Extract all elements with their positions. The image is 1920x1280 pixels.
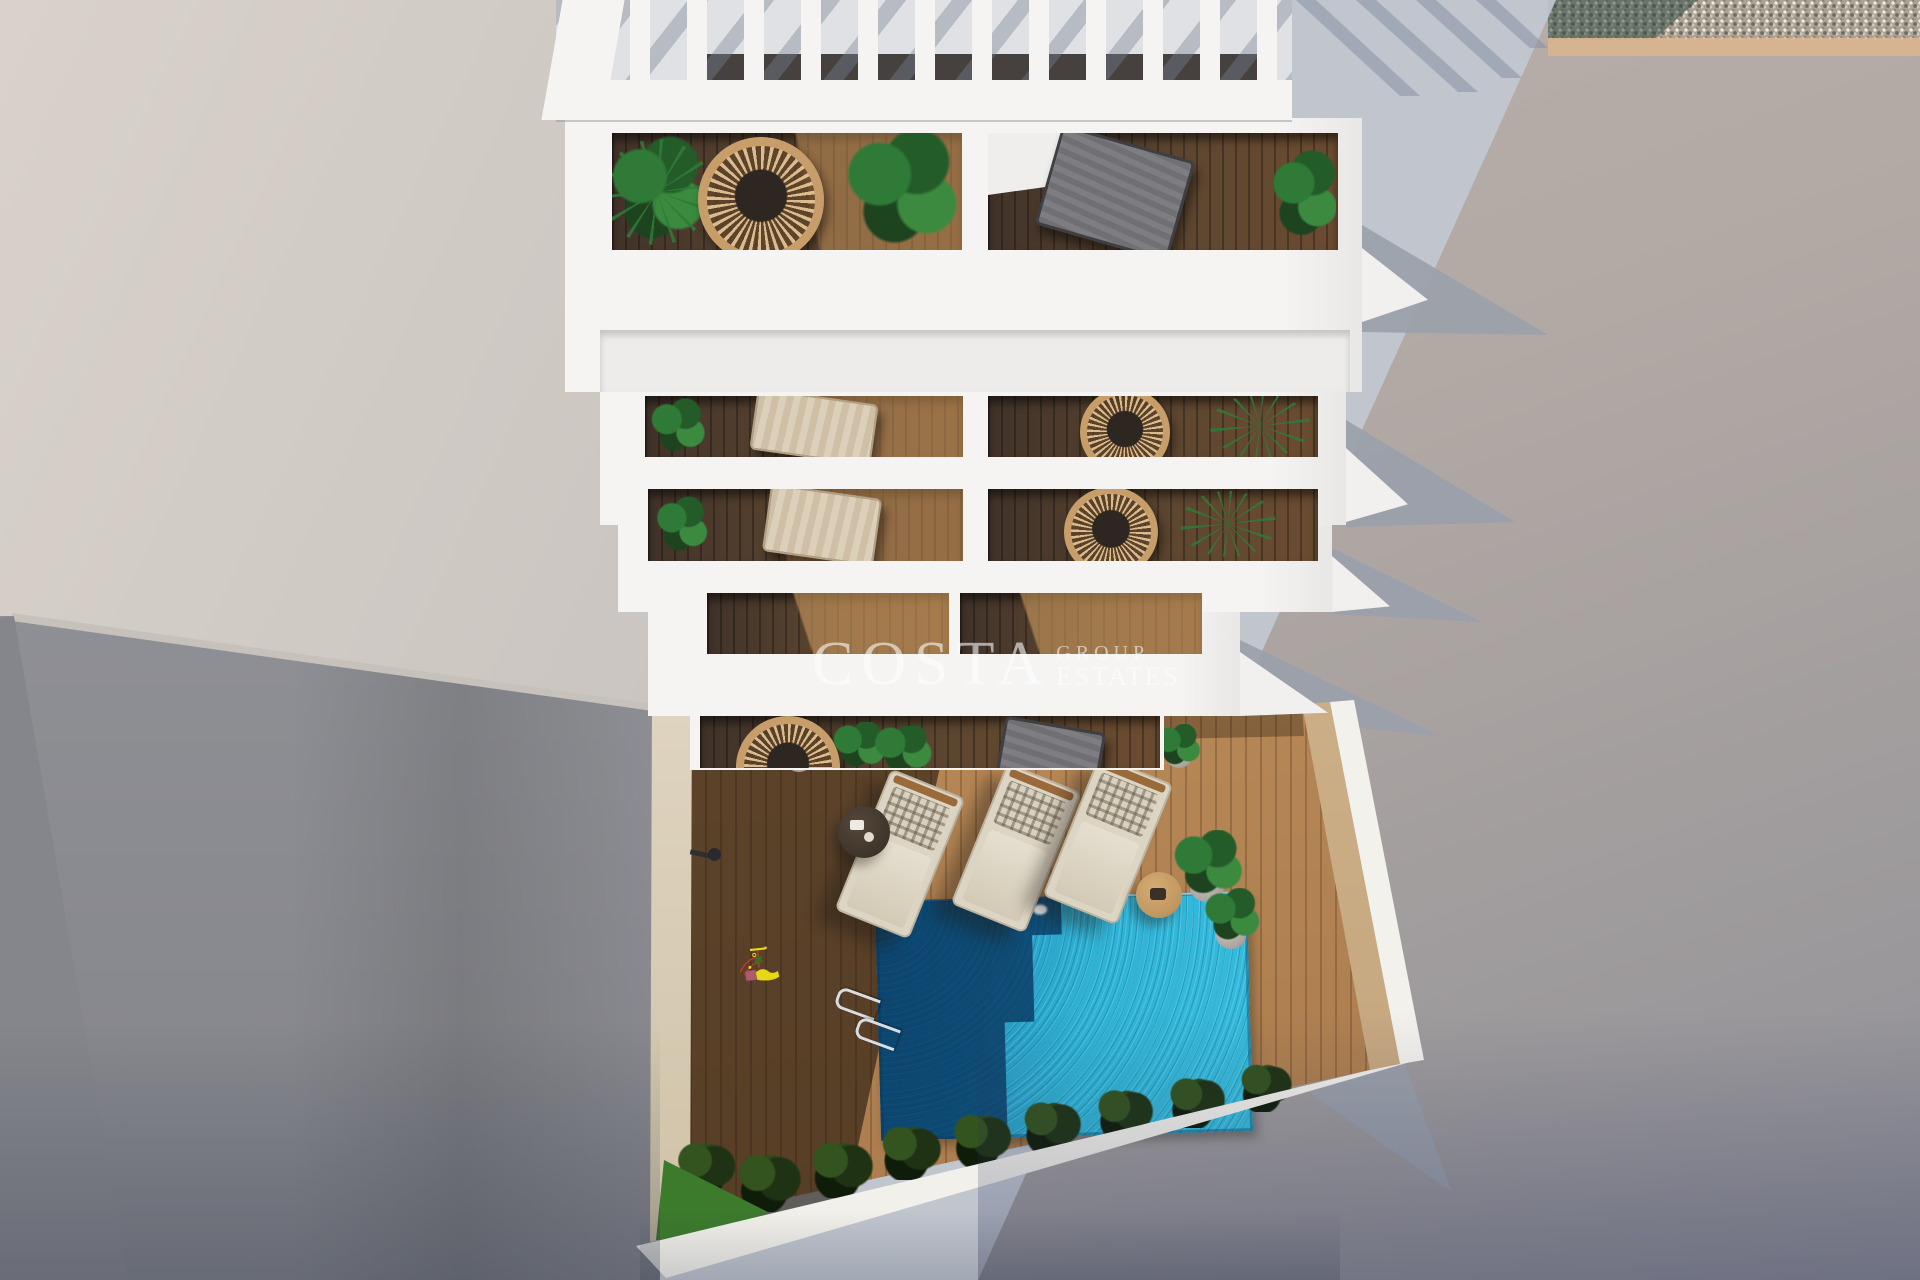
balcony-plant — [647, 398, 709, 454]
terrace-chair — [996, 716, 1107, 768]
wicker-chair — [1064, 489, 1158, 561]
balcony-row3-left — [648, 489, 963, 561]
hanging-wicker-chair — [1080, 396, 1170, 457]
balcony-plant — [1274, 145, 1336, 245]
watermark-sub2: ESTATES — [1056, 663, 1180, 690]
ground-terrace-strip — [700, 716, 1160, 768]
beige-lounge-chair — [762, 489, 882, 561]
balcony-plant — [654, 495, 710, 555]
wicker-chair — [736, 716, 840, 768]
balcony-side-face — [1346, 448, 1408, 522]
balcony-row1-left — [612, 133, 962, 250]
watermark-brand: COSTA — [812, 638, 1050, 691]
balcony-row2-right — [988, 396, 1318, 457]
palm-plant — [1180, 491, 1276, 557]
balcony-row3-right — [988, 489, 1318, 561]
balcony-plant — [840, 133, 962, 250]
watermark-sub1: GROUP — [1056, 643, 1180, 663]
terrace-plant — [868, 726, 938, 768]
balcony-side-face — [1240, 652, 1328, 716]
pergola-slats — [630, 0, 1292, 84]
watermark: COSTA GROUP ESTATES — [812, 638, 1180, 691]
beige-lounge-chair — [749, 396, 878, 457]
balcony-row2-left — [645, 396, 963, 457]
gray-lounge-chair — [1034, 133, 1195, 250]
facade-recess — [600, 330, 1350, 392]
pergola-front-beam — [556, 80, 1292, 120]
balcony-side-face — [1332, 556, 1390, 612]
balcony-row1-right — [988, 133, 1338, 250]
balcony-side-face — [1362, 248, 1428, 322]
palm-plant — [1210, 396, 1310, 457]
wicker-papasan-chair — [698, 137, 824, 250]
render-scene: COSTA GROUP ESTATES — [0, 0, 1920, 1280]
